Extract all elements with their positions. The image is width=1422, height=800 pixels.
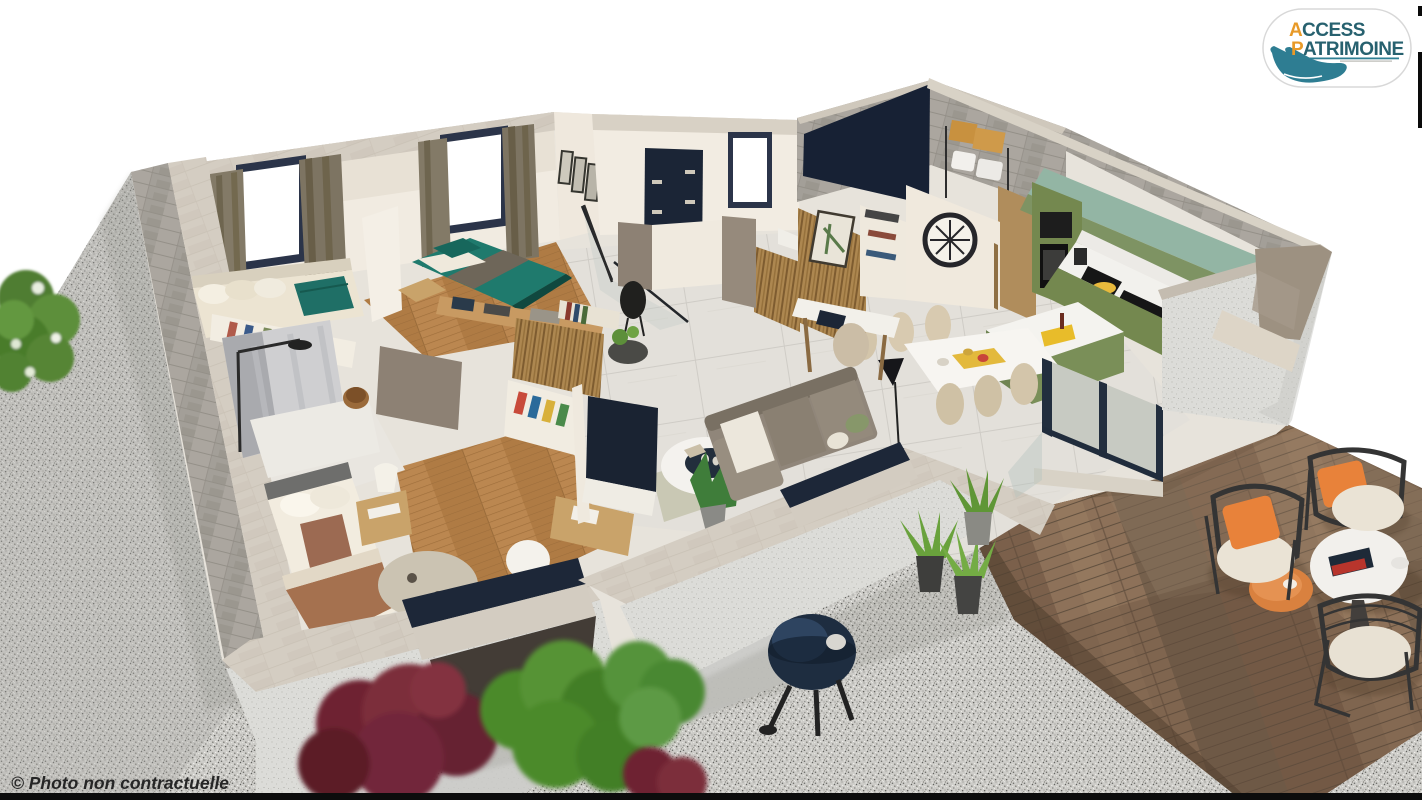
svg-text:© Photo non contractuelle: © Photo non contractuelle — [11, 773, 229, 793]
svg-text:A: A — [1289, 20, 1303, 41]
svg-text:CCESS: CCESS — [1302, 20, 1365, 41]
svg-text:ATRIMOINE: ATRIMOINE — [1303, 39, 1404, 60]
